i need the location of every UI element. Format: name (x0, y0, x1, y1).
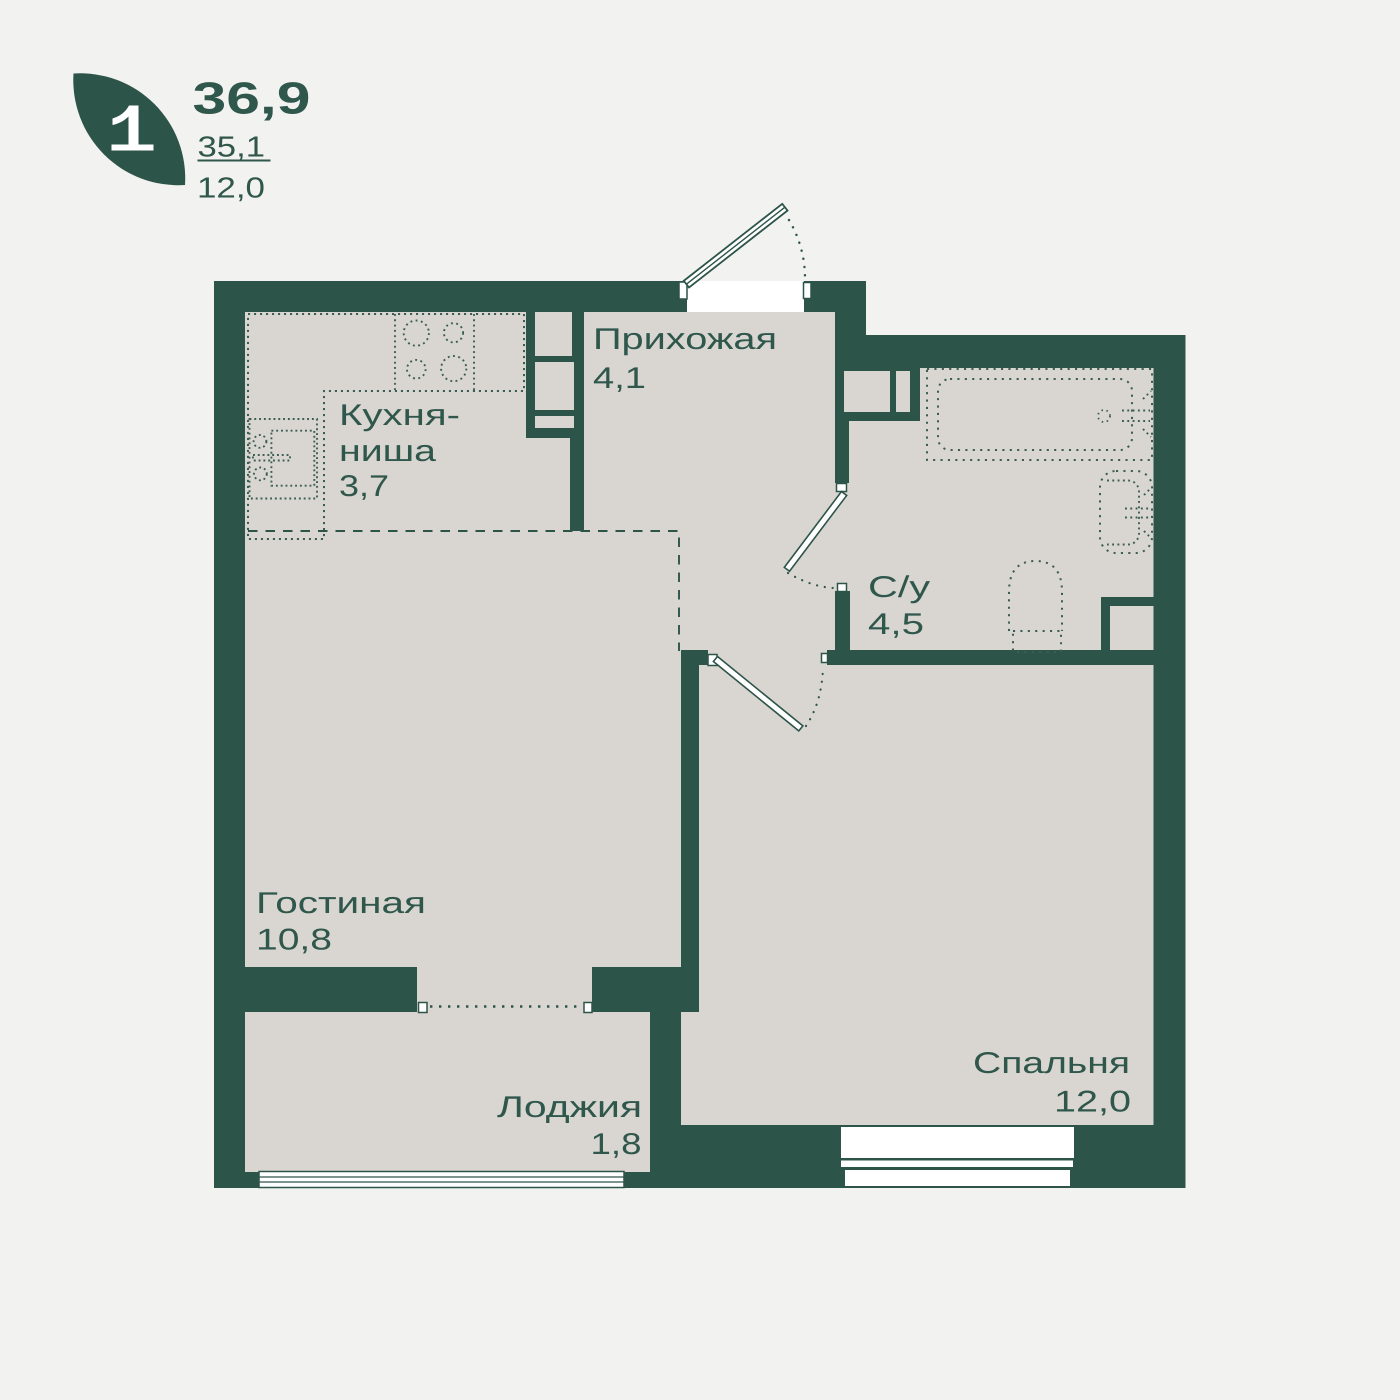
svg-text:36,9: 36,9 (192, 72, 310, 123)
svg-text:ниша: ниша (339, 435, 436, 468)
svg-text:4,5: 4,5 (868, 608, 924, 641)
svg-text:Лоджия: Лоджия (497, 1091, 642, 1124)
svg-text:35,1: 35,1 (197, 131, 265, 163)
svg-text:10,8: 10,8 (256, 923, 332, 956)
svg-text:3,7: 3,7 (339, 470, 389, 503)
svg-text:Гостиная: Гостиная (256, 887, 426, 920)
svg-text:4,1: 4,1 (593, 362, 646, 395)
svg-text:Спальня: Спальня (973, 1047, 1130, 1080)
svg-text:1,8: 1,8 (590, 1128, 641, 1161)
svg-text:12,0: 12,0 (1054, 1085, 1131, 1118)
svg-text:Кухня-: Кухня- (339, 399, 460, 432)
svg-text:Прихожая: Прихожая (593, 323, 777, 356)
svg-text:С/у: С/у (868, 571, 930, 604)
svg-text:12,0: 12,0 (197, 172, 265, 204)
